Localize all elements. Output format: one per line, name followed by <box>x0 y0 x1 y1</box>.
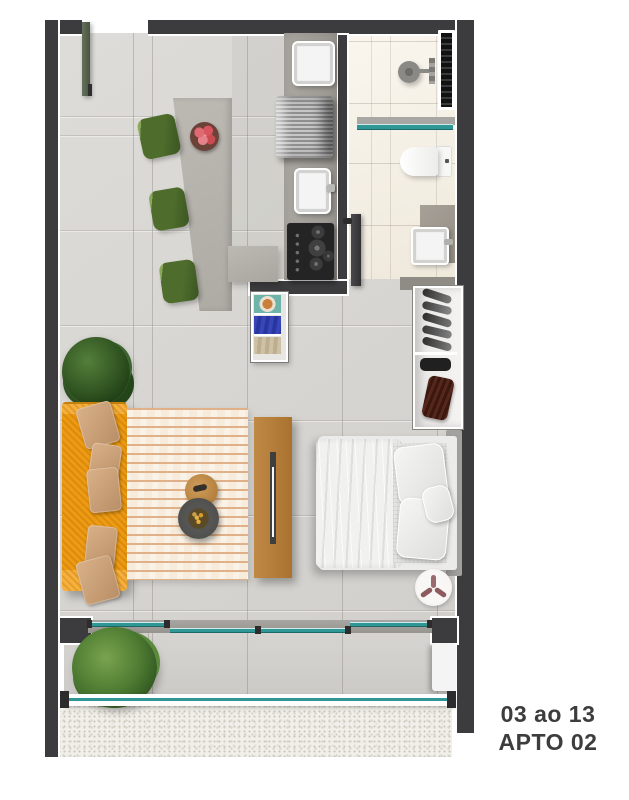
railing-post <box>60 691 69 708</box>
door-frame-cap <box>427 620 432 628</box>
sofa-pillow <box>86 466 122 513</box>
kitchen-faucet <box>326 184 335 192</box>
door-frame-cap <box>345 626 351 634</box>
door-frame-cap <box>87 620 92 628</box>
toilet-flush-button <box>445 159 449 163</box>
entry-door-handle <box>88 84 92 96</box>
refrigerator <box>276 96 333 158</box>
sliding-door-glass <box>90 622 168 627</box>
folded-blanket <box>421 375 455 421</box>
rug-pattern <box>420 587 434 599</box>
fruit-bowl <box>190 122 219 151</box>
indoor-plant <box>62 337 130 406</box>
toilet-bowl <box>400 147 438 176</box>
bathroom-door-leaf <box>351 214 361 286</box>
bathroom-faucet <box>444 239 453 245</box>
dining-chair-2 <box>148 186 190 232</box>
rack-divider <box>415 352 457 355</box>
wall-kitchen-bathroom <box>336 33 349 284</box>
sliding-door-glass <box>170 628 258 633</box>
door-frame-cap <box>164 620 170 628</box>
dining-chair-1 <box>136 112 182 160</box>
shower-glass-partition <box>357 124 453 130</box>
bathroom-sink <box>411 227 449 265</box>
unit-label: 03 ao 13 APTO 02 <box>492 700 604 756</box>
shelf-item-towels-blue <box>254 316 281 336</box>
kitchen-sink-main <box>294 168 331 214</box>
shelf-item-plate <box>254 295 281 315</box>
bathroom-door-handle <box>343 218 352 224</box>
unit-floors-label: 03 ao 13 <box>492 700 604 728</box>
stored-bag <box>420 358 451 371</box>
window-glazing <box>441 33 452 107</box>
railing-post <box>447 691 456 708</box>
kitchen-sink-top <box>292 41 335 86</box>
shower-valve <box>429 58 435 84</box>
unit-number-label: APTO 02 <box>492 728 604 756</box>
balcony-railing <box>66 694 455 706</box>
bed-duvet <box>316 439 402 568</box>
cooktop <box>287 223 334 280</box>
ac-unit <box>432 643 456 691</box>
open-shelf <box>251 292 288 362</box>
tv-panel <box>254 417 292 578</box>
bathroom-window <box>438 30 455 110</box>
rug-pattern <box>434 587 448 599</box>
floorplan: 03 ao 13 APTO 02 <box>0 0 629 800</box>
coffee-table <box>178 498 219 539</box>
toilet-tank <box>436 146 452 177</box>
shower-head <box>398 61 420 83</box>
wall-balcony-step-right <box>430 616 459 645</box>
rug-pattern <box>431 575 436 588</box>
round-rug <box>415 569 452 606</box>
tv-screen-edge <box>272 467 274 537</box>
garden-gravel <box>60 703 452 757</box>
wall-left <box>45 20 60 757</box>
sliding-door-glass <box>350 622 430 627</box>
sliding-door-glass <box>260 628 348 633</box>
dining-chair-3 <box>158 259 199 305</box>
shelf-item-towels-beige <box>254 337 281 354</box>
door-frame-cap <box>255 626 261 634</box>
kitchen-island-extension <box>228 246 278 282</box>
shoe-rack <box>413 286 463 429</box>
